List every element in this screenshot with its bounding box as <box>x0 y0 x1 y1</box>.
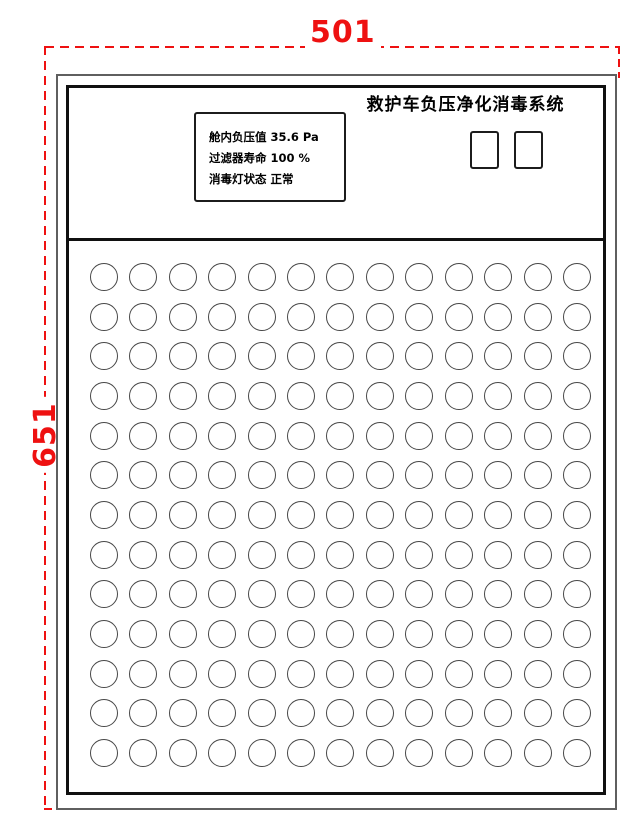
vent-hole <box>445 382 473 410</box>
vent-hole <box>248 461 276 489</box>
vent-hole <box>484 660 512 688</box>
vent-hole <box>484 580 512 608</box>
lamp-status-readout: 消毒灯状态 正常 <box>209 169 344 190</box>
vent-hole <box>563 699 591 727</box>
vent-hole <box>287 382 315 410</box>
vent-hole <box>484 501 512 529</box>
vent-hole <box>169 620 197 648</box>
vent-hole <box>90 739 118 767</box>
vent-hole <box>366 382 394 410</box>
vent-hole <box>208 739 236 767</box>
vent-hole <box>208 303 236 331</box>
vent-hole <box>445 303 473 331</box>
vent-hole <box>129 461 157 489</box>
vent-hole <box>248 699 276 727</box>
vent-hole <box>405 382 433 410</box>
technical-drawing: 501 651 救护车负压净化消毒系统 舱内负压值 35.6 Pa 过滤器寿命 … <box>0 0 643 837</box>
vent-hole <box>208 382 236 410</box>
vent-hole <box>90 382 118 410</box>
vent-hole <box>287 660 315 688</box>
vent-hole <box>524 580 552 608</box>
vent-hole <box>563 501 591 529</box>
vent-hole <box>524 699 552 727</box>
vent-hole <box>248 382 276 410</box>
vent-hole <box>287 422 315 450</box>
vent-hole <box>563 620 591 648</box>
vent-hole <box>326 699 354 727</box>
vent-hole <box>248 263 276 291</box>
vent-hole <box>90 580 118 608</box>
panel-button-2 <box>514 131 543 169</box>
vent-hole <box>484 342 512 370</box>
vent-hole <box>445 580 473 608</box>
panel-button-1 <box>470 131 499 169</box>
vent-hole <box>445 699 473 727</box>
vent-hole <box>563 580 591 608</box>
vent-hole <box>524 541 552 569</box>
vent-hole <box>563 541 591 569</box>
vent-hole <box>90 422 118 450</box>
vent-hole <box>129 422 157 450</box>
vent-hole <box>445 660 473 688</box>
vent-hole <box>208 541 236 569</box>
vent-hole <box>366 263 394 291</box>
system-title: 救护车负压净化消毒系统 <box>358 95 573 115</box>
vent-hole <box>326 739 354 767</box>
vent-hole <box>287 541 315 569</box>
vent-hole <box>169 660 197 688</box>
vent-hole <box>326 382 354 410</box>
vent-hole <box>326 263 354 291</box>
vent-hole <box>484 541 512 569</box>
vent-hole <box>169 382 197 410</box>
vent-hole <box>326 541 354 569</box>
vent-hole <box>129 501 157 529</box>
vent-hole <box>248 620 276 648</box>
vent-hole <box>563 461 591 489</box>
vent-hole <box>366 461 394 489</box>
vent-hole <box>445 422 473 450</box>
vent-hole <box>366 580 394 608</box>
vent-hole <box>208 580 236 608</box>
vent-hole <box>287 620 315 648</box>
vent-hole <box>524 422 552 450</box>
vent-hole <box>405 422 433 450</box>
vent-hole <box>287 580 315 608</box>
vent-hole <box>524 501 552 529</box>
vent-hole <box>524 342 552 370</box>
vent-hole <box>169 303 197 331</box>
vent-hole <box>445 620 473 648</box>
vent-hole <box>169 541 197 569</box>
vent-hole <box>129 580 157 608</box>
vent-hole <box>208 263 236 291</box>
vent-hole <box>208 699 236 727</box>
vent-hole <box>366 303 394 331</box>
vent-hole <box>326 620 354 648</box>
vent-hole <box>524 263 552 291</box>
vent-hole <box>90 461 118 489</box>
vent-hole <box>90 342 118 370</box>
vent-hole <box>129 699 157 727</box>
vent-hole <box>405 699 433 727</box>
vent-hole <box>90 699 118 727</box>
vent-hole <box>366 342 394 370</box>
vent-hole <box>169 580 197 608</box>
vent-hole <box>248 739 276 767</box>
vent-hole <box>563 739 591 767</box>
vent-hole <box>405 461 433 489</box>
vent-hole <box>445 739 473 767</box>
vent-hole <box>169 461 197 489</box>
vent-hole <box>287 342 315 370</box>
vent-hole <box>129 739 157 767</box>
vent-hole <box>326 303 354 331</box>
vent-hole <box>366 541 394 569</box>
vent-hole <box>129 382 157 410</box>
vent-hole <box>287 303 315 331</box>
vent-hole <box>208 660 236 688</box>
vent-hole <box>366 660 394 688</box>
vent-hole <box>524 620 552 648</box>
vent-hole <box>208 620 236 648</box>
vent-hole <box>208 501 236 529</box>
vent-hole <box>445 342 473 370</box>
vent-hole <box>129 263 157 291</box>
vent-hole <box>326 422 354 450</box>
panel-divider-line <box>66 238 606 241</box>
vent-hole <box>248 342 276 370</box>
vent-hole <box>563 660 591 688</box>
vent-hole <box>129 660 157 688</box>
vent-hole <box>484 739 512 767</box>
vent-hole <box>248 541 276 569</box>
vent-hole <box>445 461 473 489</box>
vent-hole <box>326 461 354 489</box>
vent-hole <box>405 580 433 608</box>
vent-hole <box>208 342 236 370</box>
filter-life-readout: 过滤器寿命 100 % <box>209 148 344 169</box>
vent-hole <box>169 342 197 370</box>
vent-hole <box>248 660 276 688</box>
vent-hole <box>90 660 118 688</box>
vent-hole <box>445 541 473 569</box>
vent-hole <box>287 461 315 489</box>
vent-hole <box>169 699 197 727</box>
vent-hole <box>366 739 394 767</box>
vent-hole <box>405 263 433 291</box>
vent-hole <box>563 422 591 450</box>
vent-hole <box>405 303 433 331</box>
vent-hole <box>90 303 118 331</box>
vent-hole <box>248 303 276 331</box>
vent-hole <box>405 342 433 370</box>
vent-hole <box>484 461 512 489</box>
vent-hole <box>445 263 473 291</box>
width-dimension-extension <box>618 46 620 78</box>
vent-hole <box>484 699 512 727</box>
vent-hole <box>563 303 591 331</box>
width-dimension-label: 501 <box>305 18 381 48</box>
vent-hole <box>563 263 591 291</box>
vent-hole <box>208 461 236 489</box>
vent-hole <box>366 422 394 450</box>
vent-hole <box>90 263 118 291</box>
pressure-readout: 舱内负压值 35.6 Pa <box>209 127 344 148</box>
vent-hole <box>287 501 315 529</box>
vent-hole <box>326 660 354 688</box>
vent-hole <box>563 342 591 370</box>
vent-hole <box>524 739 552 767</box>
vent-hole <box>524 303 552 331</box>
vent-hole <box>287 739 315 767</box>
vent-hole <box>405 501 433 529</box>
vent-hole <box>248 580 276 608</box>
vent-hole-grid <box>84 257 597 773</box>
vent-hole <box>484 303 512 331</box>
vent-hole <box>90 620 118 648</box>
vent-hole <box>484 263 512 291</box>
vent-hole <box>169 422 197 450</box>
vent-hole <box>287 263 315 291</box>
vent-hole <box>366 620 394 648</box>
vent-hole <box>405 739 433 767</box>
vent-hole <box>169 739 197 767</box>
vent-hole <box>326 501 354 529</box>
status-display: 舱内负压值 35.6 Pa 过滤器寿命 100 % 消毒灯状态 正常 <box>194 112 346 202</box>
vent-hole <box>366 699 394 727</box>
vent-hole <box>129 541 157 569</box>
vent-hole <box>484 620 512 648</box>
vent-hole <box>169 501 197 529</box>
vent-hole <box>484 382 512 410</box>
vent-hole <box>90 541 118 569</box>
vent-hole <box>524 382 552 410</box>
vent-hole <box>445 501 473 529</box>
vent-hole <box>524 660 552 688</box>
vent-hole <box>563 382 591 410</box>
vent-hole <box>90 501 118 529</box>
vent-hole <box>248 501 276 529</box>
vent-hole <box>169 263 197 291</box>
vent-hole <box>129 303 157 331</box>
vent-hole <box>524 461 552 489</box>
vent-hole <box>208 422 236 450</box>
vent-hole <box>129 342 157 370</box>
vent-hole <box>405 660 433 688</box>
vent-hole <box>248 422 276 450</box>
vent-hole <box>484 422 512 450</box>
vent-hole <box>326 580 354 608</box>
vent-hole <box>366 501 394 529</box>
vent-hole <box>405 541 433 569</box>
vent-hole <box>287 699 315 727</box>
vent-hole <box>405 620 433 648</box>
vent-hole <box>129 620 157 648</box>
vent-hole <box>326 342 354 370</box>
